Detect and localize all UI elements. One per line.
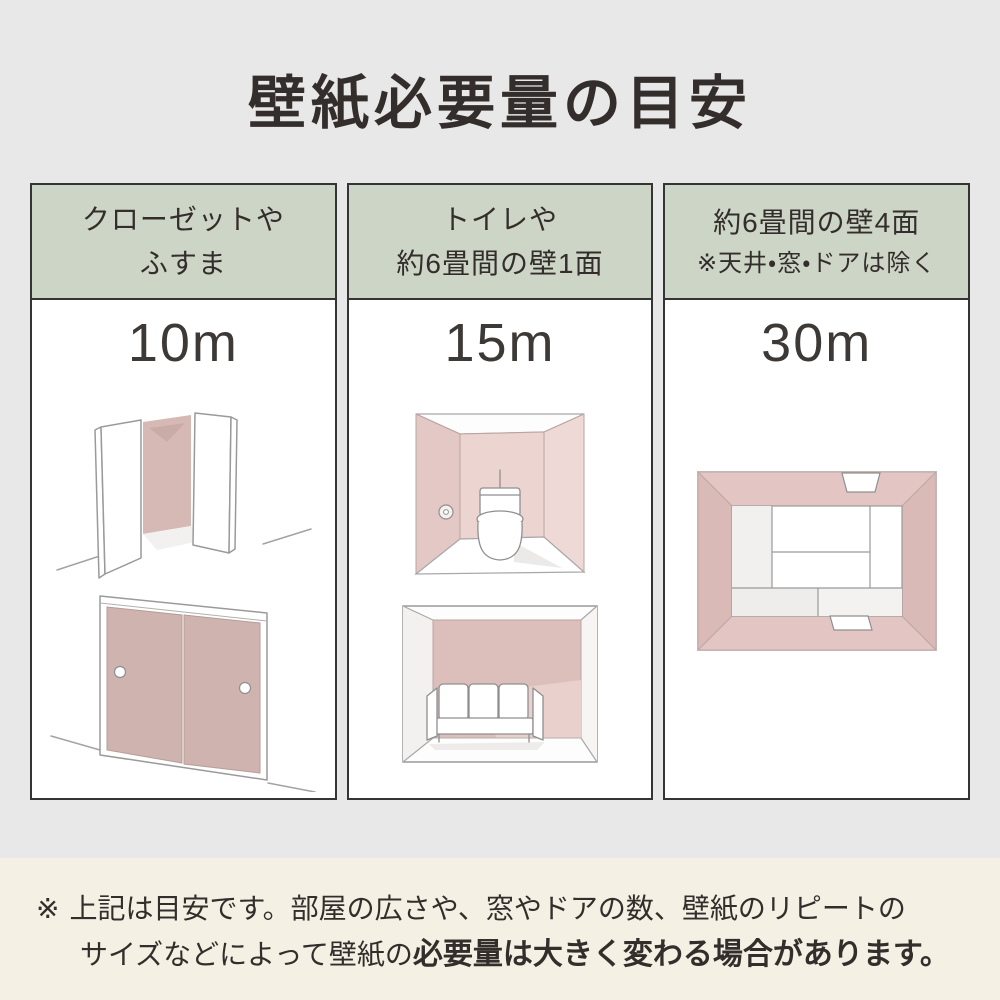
footnote-line-1-text: 上記は目安です。部屋の広さや、窓やドアの数、壁紙のリピートの bbox=[69, 886, 905, 931]
one-wall-room-illustration bbox=[385, 584, 615, 780]
column-3-header-line-2: ※天井・窓・ドアは除く bbox=[697, 245, 936, 282]
column-2-header: トイレや 約6畳間の壁1面 bbox=[349, 185, 652, 300]
footnote-line-1: ※ 上記は目安です。部屋の広さや、窓やドアの数、壁紙のリピートの bbox=[36, 886, 970, 931]
column-2-amount: 15m bbox=[444, 312, 555, 374]
column-2-header-line-2: 約6畳間の壁1面 bbox=[396, 242, 603, 285]
column-1-header-line-2: ふすま bbox=[140, 242, 227, 285]
footnote-line-2: サイズなどによって壁紙の必要量は大きく変わる場合があります。 bbox=[36, 931, 970, 980]
footnote-line-2-bold: 必要量は大きく変わる場合があります。 bbox=[413, 938, 950, 971]
closet-illustration bbox=[43, 400, 323, 586]
footnote-line-2-regular: サイズなどによって壁紙の bbox=[80, 939, 413, 970]
fusuma-illustration bbox=[43, 586, 323, 792]
page-title: 壁紙必要量の目安 bbox=[0, 56, 1000, 140]
reference-mark: ※ bbox=[36, 886, 59, 931]
column-1-amount: 10m bbox=[128, 312, 239, 374]
footnote: ※ 上記は目安です。部屋の広さや、窓やドアの数、壁紙のリピートの サイズなどによ… bbox=[0, 858, 1000, 1000]
column-1-header: クローゼットや ふすま bbox=[32, 185, 335, 300]
column-3-amount: 30m bbox=[761, 312, 872, 374]
column-2-header-line-1: トイレや bbox=[442, 198, 558, 241]
guide-columns: クローゼットや ふすま 10m bbox=[30, 183, 970, 800]
column-1-header-line-1: クローゼットや bbox=[82, 198, 285, 241]
tatami-room-overhead-illustration bbox=[692, 466, 942, 656]
column-toilet-one-wall: トイレや 約6畳間の壁1面 15m bbox=[347, 183, 654, 800]
toilet-room-illustration bbox=[394, 402, 606, 584]
column-3-header-line-1: 約6畳間の壁4面 bbox=[713, 201, 920, 244]
column-3-header: 約6畳間の壁4面 ※天井・窓・ドアは除く bbox=[665, 185, 968, 300]
column-closet-fusuma: クローゼットや ふすま 10m bbox=[30, 183, 337, 800]
column-four-walls: 約6畳間の壁4面 ※天井・窓・ドアは除く 30m bbox=[663, 183, 970, 800]
